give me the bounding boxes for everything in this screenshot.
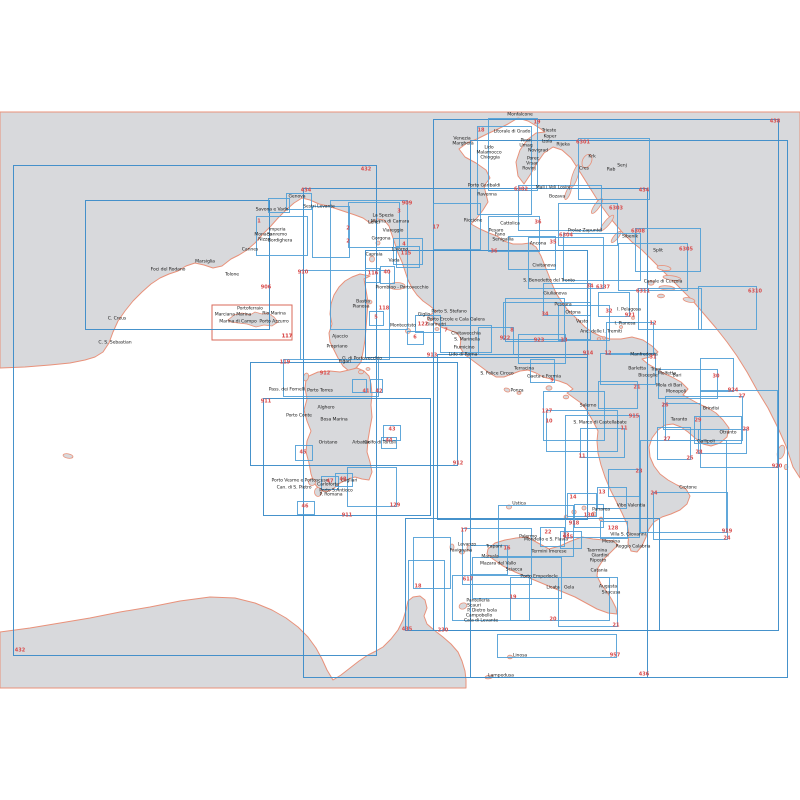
chart-number-label: 617 <box>463 578 473 583</box>
chart-number-label: 914 <box>583 352 593 357</box>
chart-number-label: 11 <box>579 455 586 460</box>
chart-number-label: 18 <box>478 129 485 134</box>
chart-number-label: 19 <box>510 596 517 601</box>
chart-number-label: 910 <box>298 271 308 276</box>
chart-number-label: 9 <box>550 379 553 384</box>
chart-number-label: 920 <box>772 465 782 470</box>
chart-number-label: 911 <box>342 514 352 519</box>
chart-number-label: 913 <box>427 354 437 359</box>
chart-number-label: 436 <box>639 673 649 678</box>
chart-number-label: 919 <box>722 530 732 535</box>
chart-number-label: 23 <box>636 470 643 475</box>
chart-number-label: 6311 <box>636 290 650 295</box>
chart-number-label: 118 <box>379 307 389 312</box>
chart-number-label: 6301 <box>576 141 590 146</box>
chart-number-label: 923 <box>534 339 544 344</box>
chart-number-label: 911 <box>261 400 271 405</box>
chart-number-label: 924 <box>728 389 738 394</box>
nautical-chart-index-map: Foci del RodanoMarsigliaToloneCannesMona… <box>0 0 800 800</box>
chart-number-label: 34 <box>587 285 594 290</box>
chart-number-label: 16 <box>504 547 511 552</box>
chart-number-label: 31 <box>650 356 657 361</box>
chart-number-label: 19 <box>534 121 541 126</box>
chart-number-label: 14 <box>570 496 577 501</box>
chart-number-label: 438 <box>770 120 780 125</box>
chart-number-label: 46 <box>302 505 309 510</box>
chart-number-label: 906 <box>261 286 271 291</box>
chart-number-label: 8 <box>510 329 513 334</box>
chart-number-label: 42 <box>376 390 383 395</box>
chart-number-label: 27 <box>664 438 671 443</box>
chart-number-label: 129 <box>390 504 400 509</box>
chart-number-label: 6 <box>413 336 416 341</box>
chart-number-label: 3 <box>397 210 400 215</box>
chart-number-label: 115 <box>401 252 411 257</box>
chart-number-label: 4 <box>402 243 405 248</box>
chart-number-label: 909 <box>402 202 412 207</box>
chart-number-label: 915 <box>629 415 639 420</box>
chart-number-label: 5 <box>374 316 377 321</box>
chart-number-label: 21 <box>634 386 641 391</box>
chart-number-label: 432 <box>361 168 371 173</box>
chart-number-label: 6337 <box>596 286 610 291</box>
chart-number-label: 918 <box>569 522 579 527</box>
chart-number-label: 22 <box>545 531 552 536</box>
chart-number-label: 2 <box>346 227 349 232</box>
chart-number-label: 2 <box>346 240 349 245</box>
chart-number-label: 116 <box>368 272 378 277</box>
chart-number-label: 912 <box>453 462 463 467</box>
chart-number-label: 45 <box>300 451 307 456</box>
chart-number-label: 28 <box>696 451 703 456</box>
chart-number-label: 128 <box>608 527 618 532</box>
chart-number-label: 6303 <box>609 207 623 212</box>
chart-number-label: 7 <box>444 329 447 334</box>
chart-number-label: 957 <box>610 654 620 659</box>
chart-number-label: 36 <box>491 250 498 255</box>
chart-number-label: 127 <box>542 410 552 415</box>
chart-number-label: 41 <box>363 390 370 395</box>
chart-number-label: 18 <box>415 585 422 590</box>
chart-number-label: 921 <box>625 314 635 319</box>
chart-number-label: 6310 <box>748 290 762 295</box>
chart-number-label: 6305 <box>679 248 693 253</box>
chart-number-label: 434 <box>639 189 649 194</box>
chart-number-label: 130 <box>584 514 594 519</box>
chart-number-label: 25 <box>687 457 694 462</box>
chart-number-label: 35 <box>550 241 557 246</box>
chart-number-label: 40 <box>384 271 391 276</box>
chart-number-label: 432 <box>15 649 25 654</box>
chart-number-label: 13 <box>599 491 606 496</box>
chart-number-label: 23 <box>563 534 570 539</box>
chart-number-label: 119 <box>280 361 290 366</box>
chart-number-label: 435 <box>402 628 412 633</box>
chart-number-label: 6304 <box>559 234 573 239</box>
chart-number-label: 17 <box>461 529 468 534</box>
chart-number-label: 28 <box>743 428 750 433</box>
chart-number-label: 12 <box>605 352 612 357</box>
chart-number-label: 29 <box>695 419 702 424</box>
chart-number-label: 11 <box>621 427 628 432</box>
chart-number-label: 30 <box>713 375 720 380</box>
chart-number-label: 20 <box>550 618 557 623</box>
chart-number-label: 44 <box>386 439 393 444</box>
chart-number-label: 6308 <box>631 230 645 235</box>
chart-number-label: 6302 <box>514 188 528 193</box>
chart-number-label: 48 <box>340 478 347 483</box>
chart-number-label: 43 <box>389 428 396 433</box>
chart-number-label: 434 <box>301 189 311 194</box>
chart-number-label: 17 <box>433 226 440 231</box>
chart-number-label: 32 <box>606 310 613 315</box>
chart-number-label: 47 <box>327 480 334 485</box>
chart-number-label: 12 <box>650 322 657 327</box>
chart-number-label: 27 <box>739 395 746 400</box>
chart-number-label: 1 <box>257 220 260 225</box>
chart-number-label: 230 <box>438 629 448 634</box>
chart-number-label: 912 <box>320 372 330 377</box>
chart-number-label: 26 <box>662 404 669 409</box>
chart-number-label: 10 <box>546 420 553 425</box>
chart-number-label: 34 <box>542 313 549 318</box>
chart-number-label: 24 <box>651 492 658 497</box>
chart-numbers-layer: 4324324344344384364352309579099069101223… <box>0 0 800 800</box>
chart-number-label: 21 <box>613 624 620 629</box>
chart-number-label: 922 <box>500 337 510 342</box>
chart-number-label: 122 <box>418 323 428 328</box>
chart-number-label: 36 <box>535 221 542 226</box>
chart-number-label: 24 <box>724 537 731 542</box>
chart-number-label: 117 <box>282 335 292 340</box>
chart-number-label: 33 <box>561 339 568 344</box>
